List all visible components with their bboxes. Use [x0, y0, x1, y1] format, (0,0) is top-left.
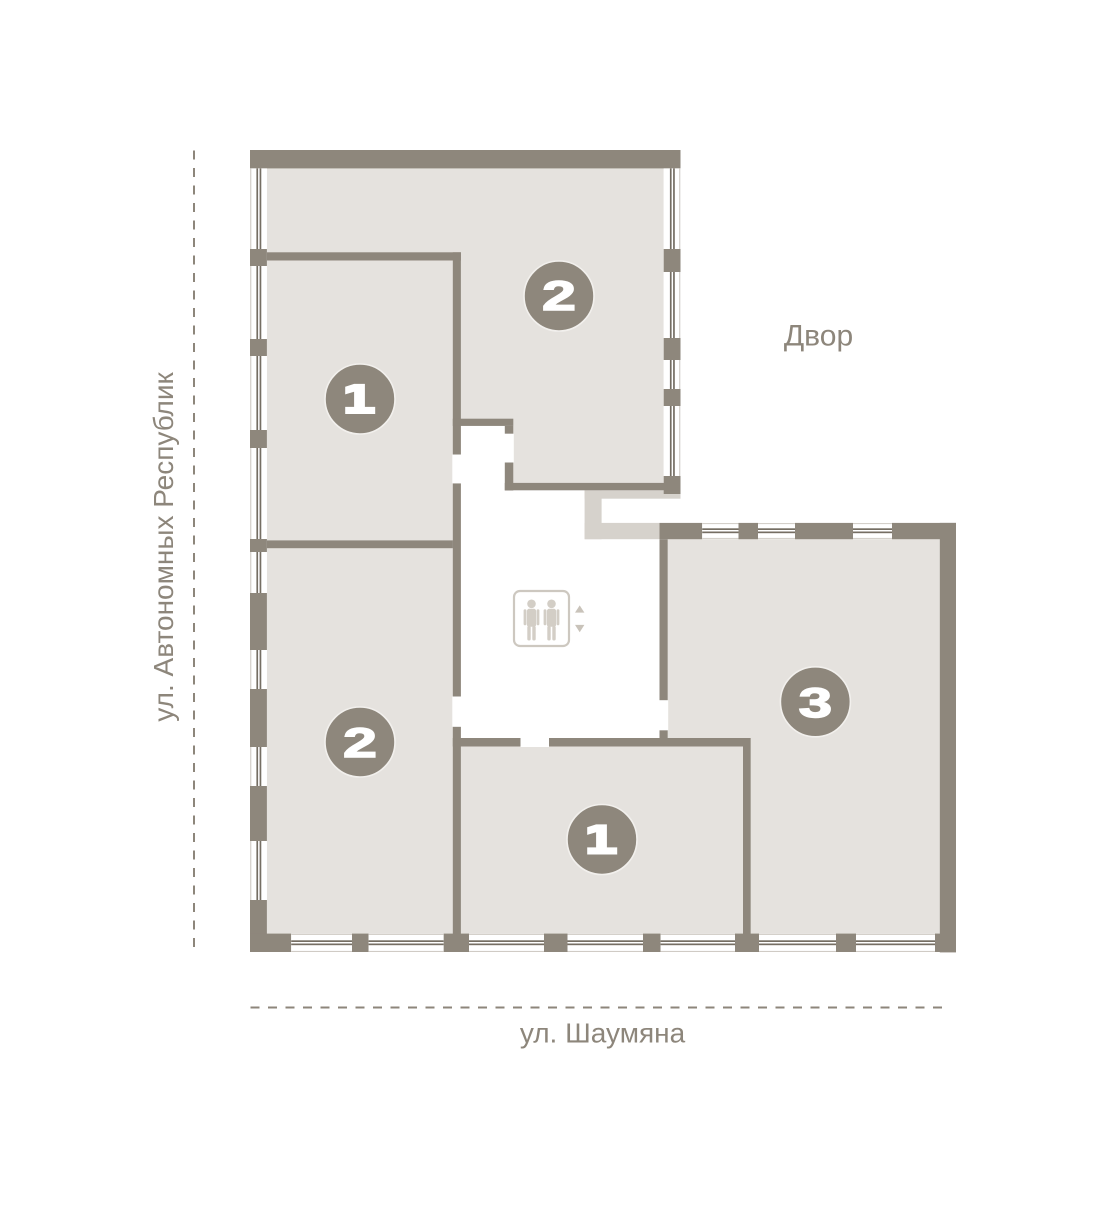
svg-text:3: 3 — [799, 679, 833, 726]
svg-text:2: 2 — [542, 272, 576, 319]
svg-text:Двор: Двор — [784, 320, 853, 353]
svg-text:2: 2 — [343, 719, 377, 766]
svg-text:ул. Автономных Республик: ул. Автономных Республик — [148, 372, 179, 722]
svg-text:ул. Шаумяна: ул. Шаумяна — [520, 1018, 686, 1049]
